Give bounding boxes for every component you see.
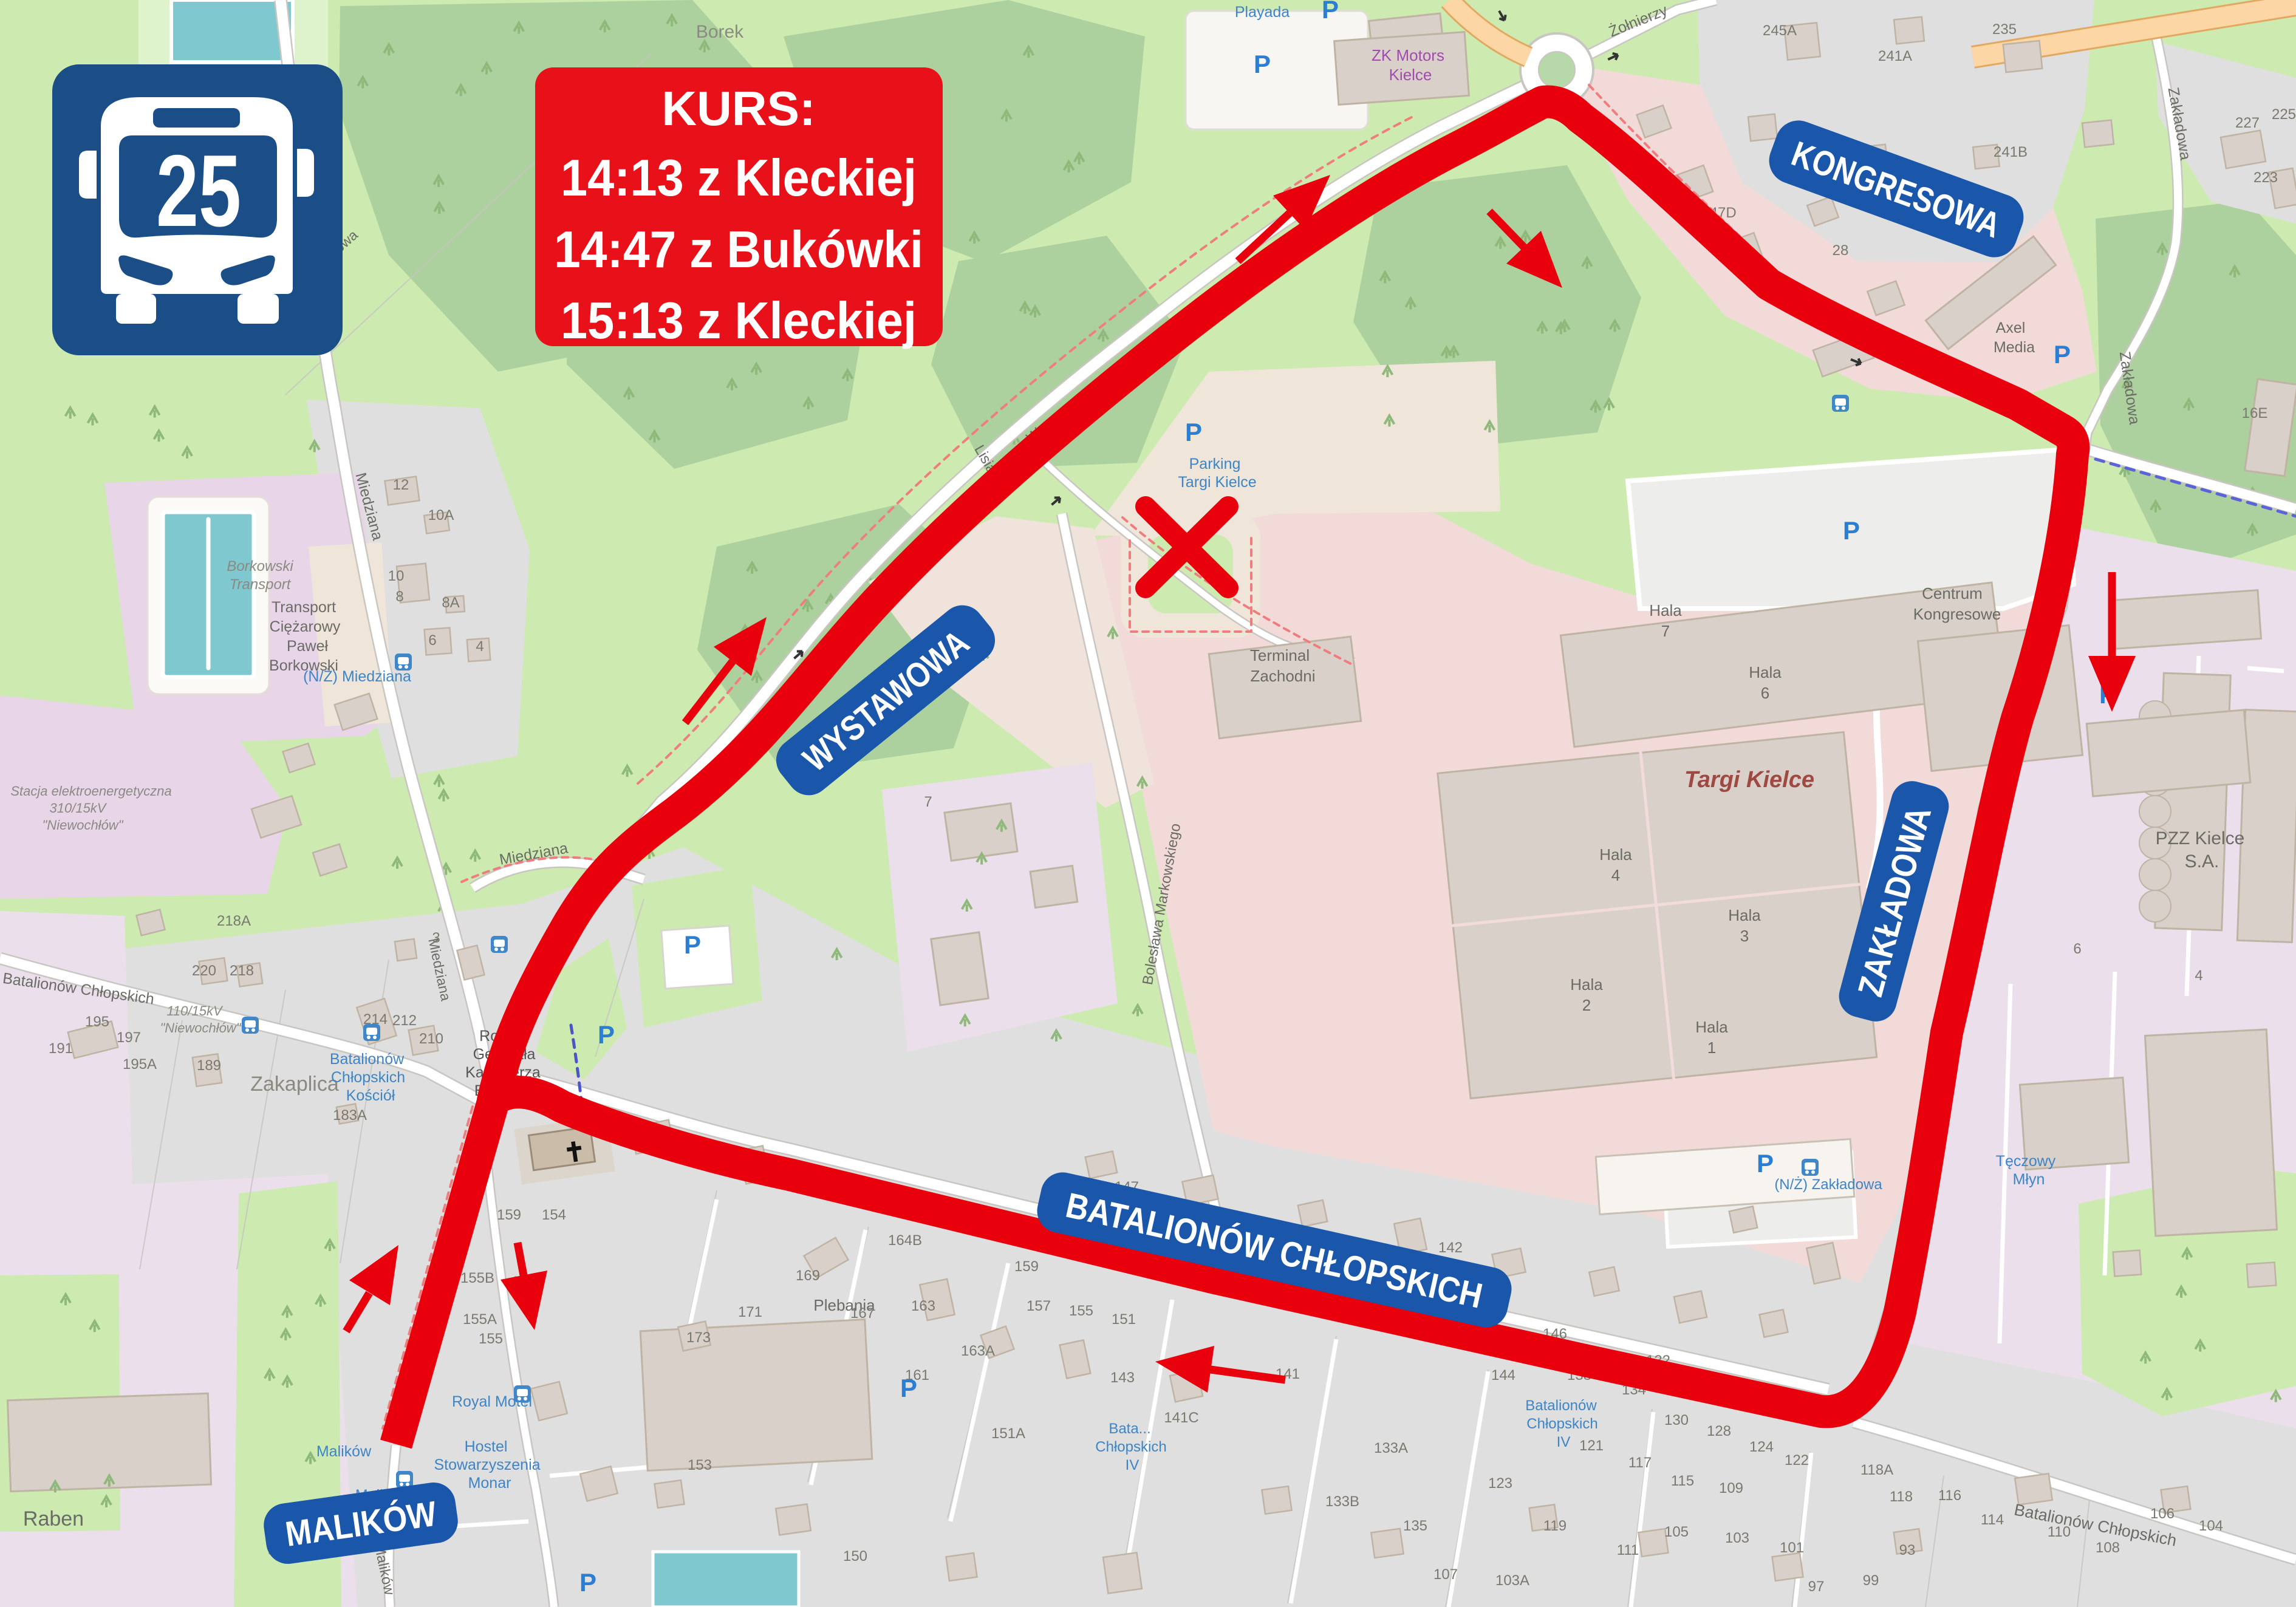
svg-text:P: P <box>598 1020 615 1049</box>
svg-text:P: P <box>579 1568 596 1597</box>
svg-text:28: 28 <box>1833 242 1849 259</box>
svg-text:Kościół: Kościół <box>346 1087 395 1104</box>
svg-text:Hala: Hala <box>1599 845 1632 864</box>
svg-text:Chłopskich: Chłopskich <box>1526 1416 1597 1432</box>
svg-text:IV: IV <box>1126 1457 1139 1473</box>
svg-text:7: 7 <box>1661 622 1670 640</box>
svg-text:10A: 10A <box>428 507 454 524</box>
svg-text:Hala: Hala <box>1570 975 1603 994</box>
svg-text:Hostel: Hostel <box>465 1438 508 1455</box>
svg-text:210: 210 <box>419 1031 443 1047</box>
svg-text:Hala: Hala <box>1749 663 1782 681</box>
svg-text:Paweł: Paweł <box>287 638 329 655</box>
svg-text:142: 142 <box>1438 1240 1463 1256</box>
svg-text:6: 6 <box>2073 941 2081 957</box>
svg-text:12: 12 <box>393 477 409 493</box>
svg-text:Chłopskich: Chłopskich <box>1095 1439 1166 1455</box>
svg-text:143: 143 <box>1110 1370 1135 1386</box>
svg-text:241A: 241A <box>1878 48 1912 64</box>
svg-text:6: 6 <box>1761 684 1769 702</box>
svg-text:124: 124 <box>1749 1439 1774 1455</box>
svg-text:Hala: Hala <box>1695 1018 1728 1036</box>
svg-text:Media: Media <box>1994 339 2035 356</box>
svg-text:169: 169 <box>796 1268 820 1284</box>
svg-text:P: P <box>1757 1149 1774 1178</box>
svg-text:S.A.: S.A. <box>2185 851 2219 872</box>
svg-text:10: 10 <box>388 568 405 584</box>
svg-text:310/15kV: 310/15kV <box>50 800 108 816</box>
svg-text:P: P <box>1185 418 1202 446</box>
svg-text:✝: ✝ <box>561 1136 587 1169</box>
svg-text:Axel: Axel <box>1996 319 2026 336</box>
svg-text:103: 103 <box>1725 1530 1749 1546</box>
svg-text:Zachodni: Zachodni <box>1251 667 1316 685</box>
svg-text:Hala: Hala <box>1728 906 1761 924</box>
svg-text:189: 189 <box>197 1057 221 1074</box>
svg-text:151A: 151A <box>991 1425 1025 1442</box>
svg-text:241B: 241B <box>1994 144 2028 160</box>
svg-text:6: 6 <box>428 632 436 649</box>
svg-text:3: 3 <box>432 930 440 946</box>
svg-text:218: 218 <box>230 963 254 979</box>
svg-text:Borkowski: Borkowski <box>227 558 293 575</box>
svg-text:16E: 16E <box>2242 405 2268 421</box>
svg-text:144: 144 <box>1491 1367 1515 1384</box>
svg-text:Borkowski: Borkowski <box>269 657 338 674</box>
svg-text:212: 212 <box>392 1012 417 1029</box>
svg-text:Hala: Hala <box>1649 601 1682 619</box>
svg-text:110/15kV: 110/15kV <box>166 1003 224 1018</box>
svg-text:128: 128 <box>1707 1423 1731 1439</box>
svg-text:Bata...: Bata... <box>1109 1421 1150 1437</box>
svg-text:105: 105 <box>1664 1524 1689 1540</box>
svg-text:118: 118 <box>1890 1489 1913 1505</box>
svg-text:Stacja elektroenergetyczna: Stacja elektroenergetyczna <box>10 783 171 799</box>
svg-text:3: 3 <box>1740 927 1749 945</box>
svg-text:197: 197 <box>117 1029 141 1046</box>
svg-text:Playada: Playada <box>1235 4 1290 21</box>
svg-text:235: 235 <box>1992 21 2017 38</box>
svg-text:14:13 z Kleckiej: 14:13 z Kleckiej <box>561 149 917 207</box>
svg-text:Chłopskich: Chłopskich <box>331 1069 405 1086</box>
svg-text:115: 115 <box>1671 1473 1694 1489</box>
svg-text:109: 109 <box>1719 1480 1743 1496</box>
svg-text:191: 191 <box>49 1040 73 1057</box>
svg-text:110: 110 <box>2048 1524 2071 1540</box>
svg-text:155A: 155A <box>463 1311 497 1328</box>
svg-text:Kongresowe: Kongresowe <box>1913 605 2001 623</box>
svg-text:195: 195 <box>85 1014 109 1030</box>
svg-text:154: 154 <box>542 1207 566 1223</box>
svg-text:218A: 218A <box>217 913 251 929</box>
svg-text:220: 220 <box>192 963 216 979</box>
svg-text:Terminal: Terminal <box>1250 646 1310 664</box>
svg-text:195A: 195A <box>123 1056 157 1073</box>
svg-text:133B: 133B <box>1325 1493 1359 1510</box>
svg-text:Batalionów: Batalionów <box>330 1051 405 1068</box>
svg-text:Borek: Borek <box>696 22 744 42</box>
svg-text:108: 108 <box>2096 1540 2120 1556</box>
svg-text:130: 130 <box>1664 1412 1689 1428</box>
svg-text:117: 117 <box>1628 1455 1652 1471</box>
svg-text:Targi Kielce: Targi Kielce <box>1178 474 1256 491</box>
svg-text:97: 97 <box>1808 1578 1825 1595</box>
svg-text:8A: 8A <box>442 595 459 611</box>
svg-text:119: 119 <box>1543 1518 1567 1534</box>
svg-text:153: 153 <box>688 1457 712 1473</box>
svg-text:25: 25 <box>156 134 241 248</box>
svg-text:Monar: Monar <box>468 1475 511 1492</box>
svg-text:155: 155 <box>479 1331 503 1347</box>
svg-text:(N/Ż) Zakładowa: (N/Ż) Zakładowa <box>1774 1176 1882 1193</box>
svg-text:Transport: Transport <box>272 599 336 616</box>
svg-text:Stowarzyszenia: Stowarzyszenia <box>434 1456 540 1473</box>
svg-text:227: 227 <box>2235 115 2260 131</box>
svg-text:103A: 103A <box>1495 1572 1529 1589</box>
svg-text:P: P <box>684 930 701 959</box>
svg-text:118A: 118A <box>1860 1462 1893 1478</box>
svg-text:225: 225 <box>2272 106 2296 123</box>
svg-text:P: P <box>2054 340 2071 369</box>
svg-text:IV: IV <box>1557 1434 1571 1450</box>
svg-text:93: 93 <box>1899 1542 1916 1558</box>
svg-text:135: 135 <box>1403 1518 1427 1534</box>
svg-text:PZZ Kielce: PZZ Kielce <box>2156 828 2245 848</box>
svg-text:14:47 z Bukówki: 14:47 z Bukówki <box>554 221 923 279</box>
svg-text:2: 2 <box>1582 996 1591 1014</box>
svg-text:ZK Motors: ZK Motors <box>1372 46 1444 64</box>
svg-text:121: 121 <box>1579 1438 1604 1454</box>
svg-text:4: 4 <box>476 638 483 655</box>
svg-text:183A: 183A <box>333 1107 367 1124</box>
svg-text:1: 1 <box>1707 1039 1716 1057</box>
svg-text:163A: 163A <box>961 1343 995 1359</box>
svg-text:Młyn: Młyn <box>2013 1171 2045 1188</box>
svg-text:P: P <box>900 1374 917 1402</box>
svg-text:173: 173 <box>686 1329 711 1346</box>
svg-text:Transport: Transport <box>230 576 292 593</box>
svg-text:Targi Kielce: Targi Kielce <box>1684 767 1814 793</box>
svg-text:Tęczowy: Tęczowy <box>1996 1153 2056 1170</box>
svg-text:Kielce: Kielce <box>1389 66 1432 84</box>
svg-text:P: P <box>1322 0 1339 24</box>
svg-text:171: 171 <box>738 1304 762 1320</box>
svg-text:Ciężarowy: Ciężarowy <box>270 618 341 635</box>
svg-text:106: 106 <box>2150 1506 2175 1522</box>
svg-text:163: 163 <box>911 1298 935 1314</box>
svg-text:"Niewochłów": "Niewochłów" <box>43 817 124 833</box>
svg-text:107: 107 <box>1433 1566 1458 1583</box>
svg-text:123: 123 <box>1488 1475 1512 1492</box>
svg-text:4: 4 <box>1611 866 1620 884</box>
svg-text:159: 159 <box>1014 1258 1039 1275</box>
svg-text:155B: 155B <box>460 1270 494 1286</box>
svg-text:114: 114 <box>1981 1512 2004 1528</box>
svg-text:P: P <box>1254 50 1271 78</box>
svg-text:141C: 141C <box>1164 1410 1198 1426</box>
svg-text:8: 8 <box>395 589 403 605</box>
svg-text:99: 99 <box>1863 1572 1879 1589</box>
svg-text:133A: 133A <box>1374 1440 1408 1456</box>
svg-text:150: 150 <box>843 1548 867 1564</box>
svg-text:7: 7 <box>924 794 932 810</box>
svg-text:245A: 245A <box>1763 22 1797 39</box>
svg-text:223: 223 <box>2253 169 2278 186</box>
svg-text:151: 151 <box>1112 1311 1136 1328</box>
svg-text:4: 4 <box>2195 967 2202 984</box>
svg-text:Malików: Malików <box>316 1443 372 1460</box>
svg-text:164B: 164B <box>888 1232 922 1249</box>
svg-text:167: 167 <box>850 1305 875 1322</box>
svg-text:155: 155 <box>1069 1303 1093 1319</box>
svg-text:101: 101 <box>1780 1540 1804 1556</box>
svg-text:Raben: Raben <box>23 1507 84 1530</box>
svg-text:15:13 z Kleckiej: 15:13 z Kleckiej <box>561 292 917 350</box>
svg-text:"Niewochłów": "Niewochłów" <box>160 1020 242 1036</box>
svg-text:122: 122 <box>1785 1452 1809 1469</box>
svg-text:111: 111 <box>1617 1542 1639 1558</box>
svg-text:P: P <box>1843 516 1860 545</box>
svg-text:159: 159 <box>497 1207 521 1223</box>
svg-text:Zakaplica: Zakaplica <box>250 1073 339 1096</box>
svg-text:KURS:: KURS: <box>661 81 815 135</box>
svg-text:Centrum: Centrum <box>1922 584 1983 602</box>
svg-text:104: 104 <box>2199 1518 2223 1534</box>
svg-text:Parking: Parking <box>1189 455 1241 473</box>
svg-text:157: 157 <box>1027 1298 1051 1314</box>
svg-text:Batalionów: Batalionów <box>1525 1397 1597 1414</box>
svg-text:116: 116 <box>1938 1487 1961 1504</box>
